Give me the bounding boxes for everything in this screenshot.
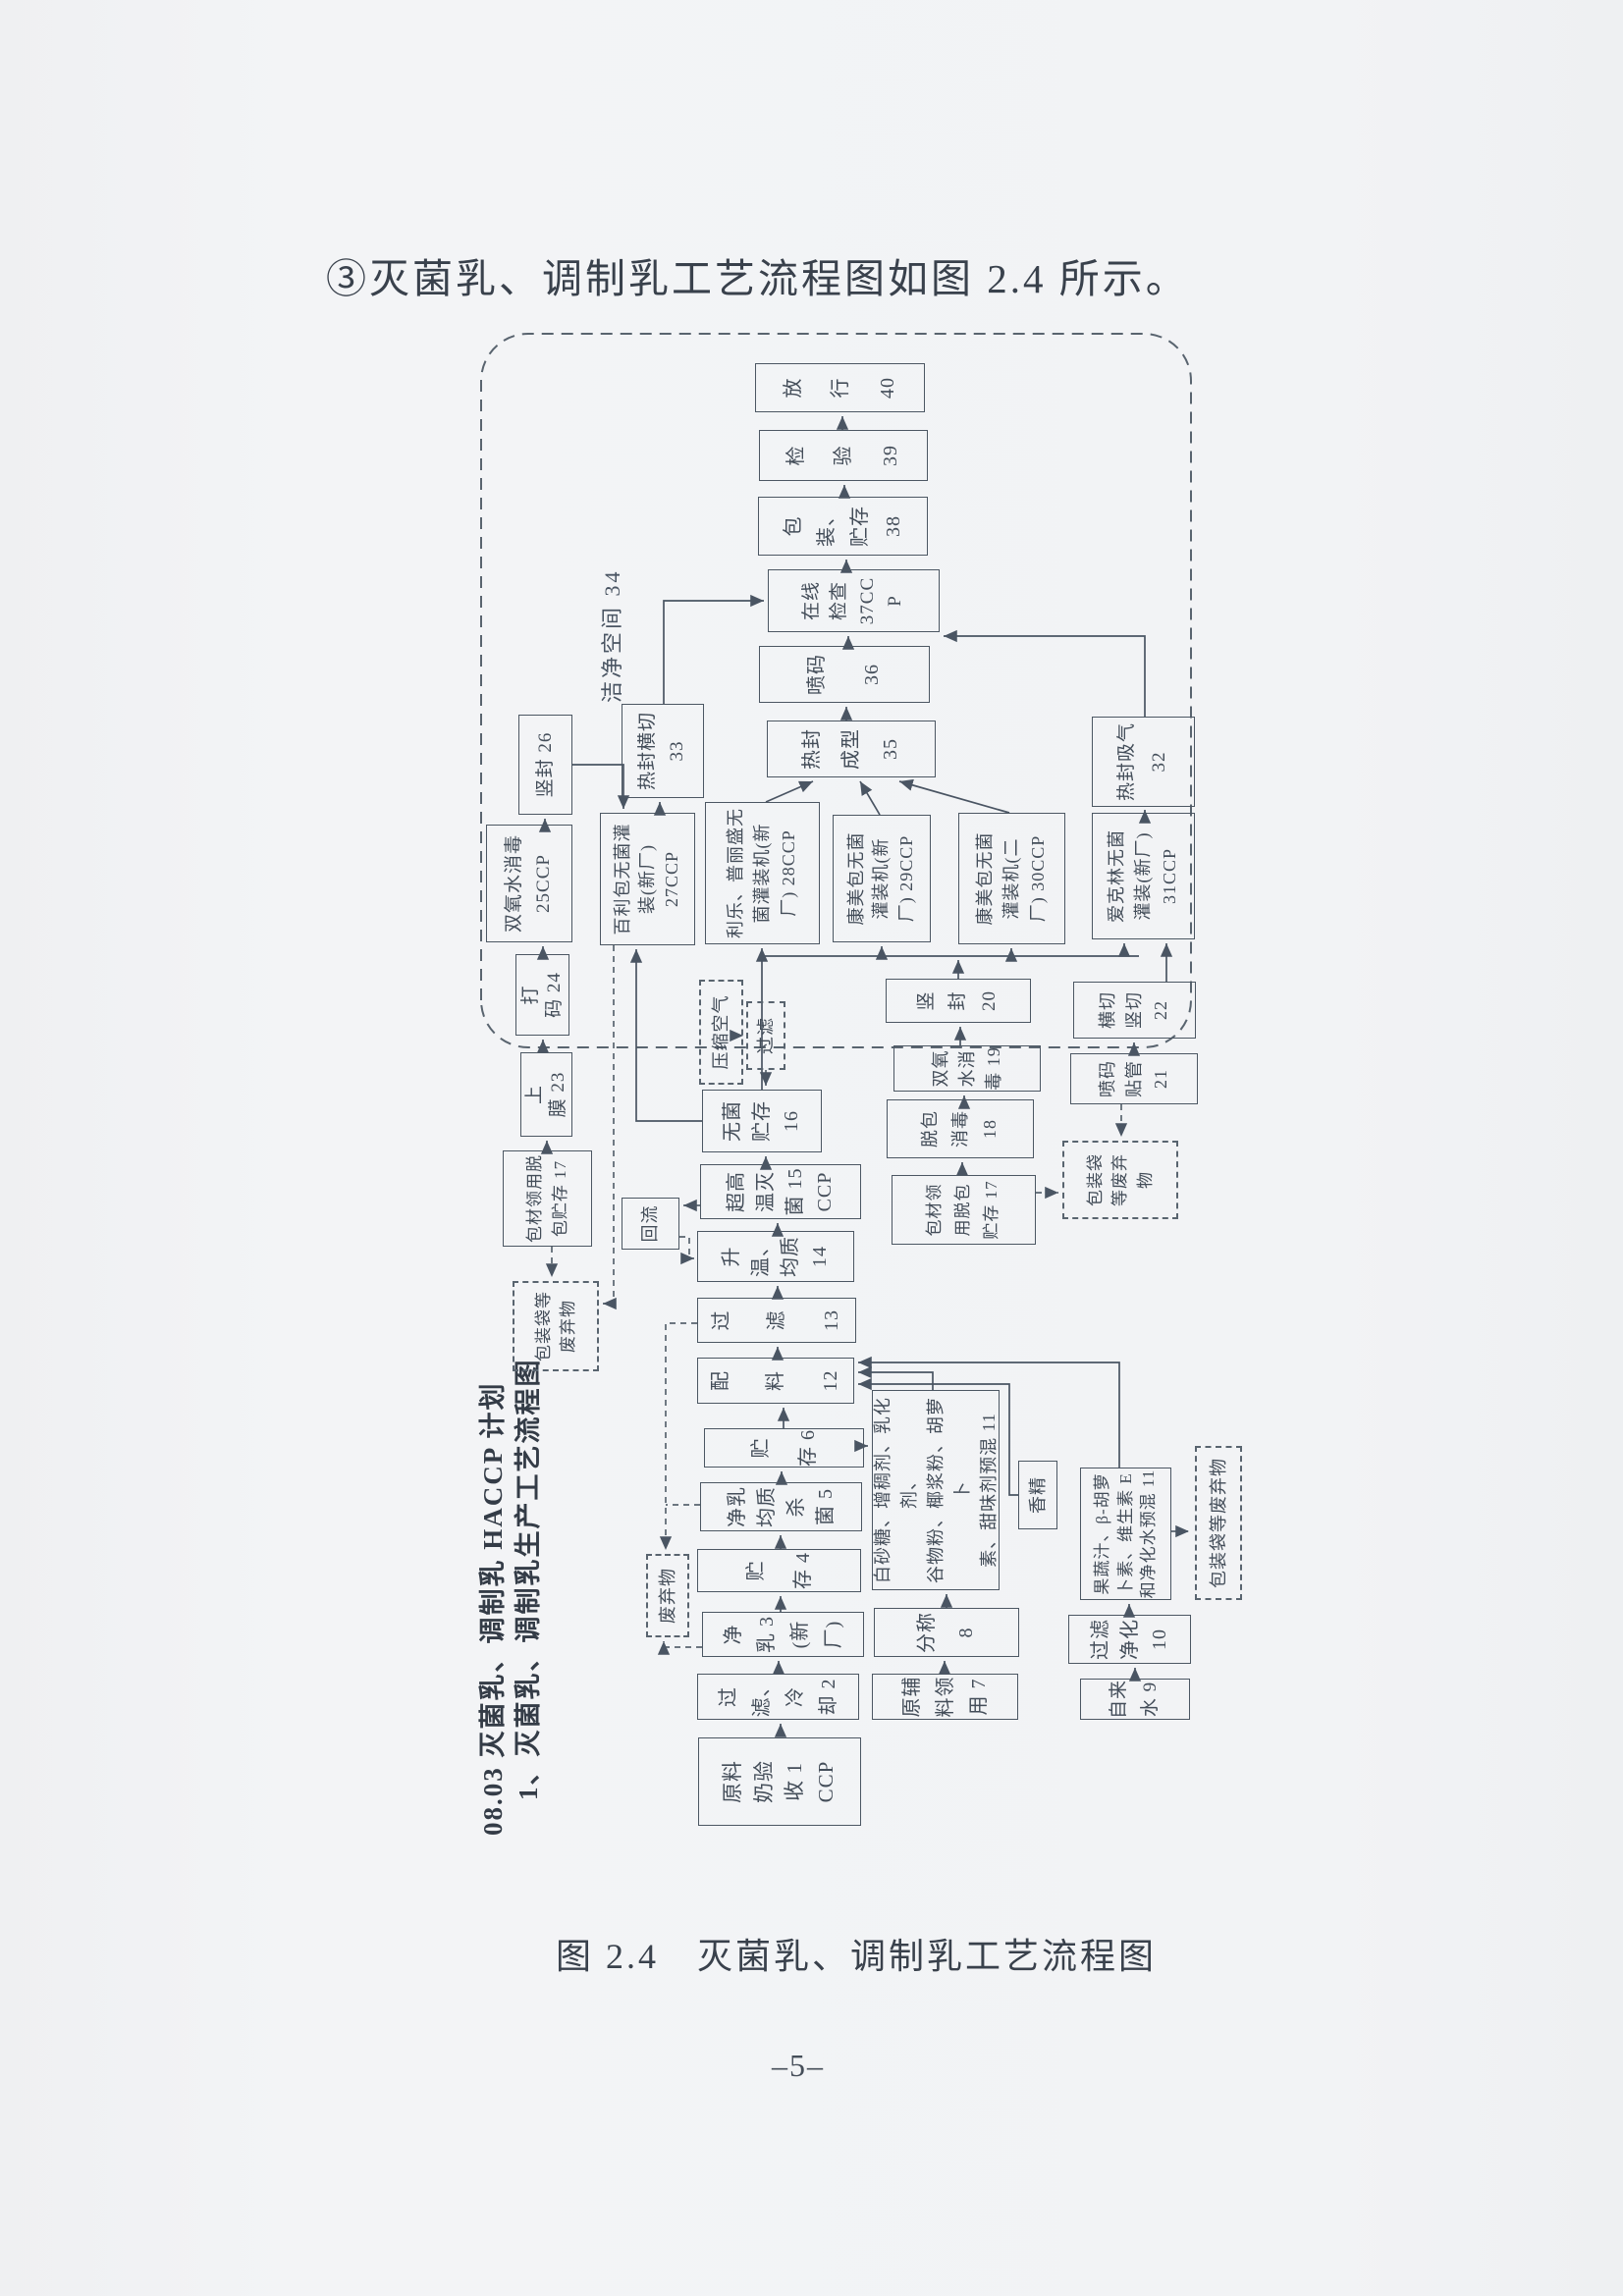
box-filter-cooling-2: 过 滤、 冷 却 2 <box>697 1674 859 1720</box>
box-clarify-homogenize-sterilize-5: 净乳 均质 杀 菌 5 <box>700 1482 862 1531</box>
box-dry-premix-11: 白砂糖、增稠剂、乳化剂、 谷物粉、椰浆粉、胡萝卜 素、甜味剂预混 11 <box>872 1390 1000 1590</box>
box-packaging-waste-left: 包装袋等 废弃物 <box>513 1281 599 1371</box>
box-ingredient-requisition-7: 原辅 料领 用 7 <box>872 1674 1018 1720</box>
box-packaging-waste-bottom: 包装袋等废弃物 <box>1195 1446 1242 1600</box>
box-flavor: 香精 <box>1018 1461 1057 1529</box>
box-clarification-3: 净 乳 3 (新 厂) <box>702 1612 864 1657</box>
box-packaging-material-17-right: 包材领 用脱包 贮存 17 <box>892 1175 1036 1245</box>
box-packaging-material-17-left: 包材领用脱 包贮存 17 <box>503 1150 592 1247</box>
box-filter-purify-10: 过滤 净化 10 <box>1068 1615 1191 1664</box>
box-combibloc-filling-29: 康美包无菌 灌装机(新 厂) 29CCP <box>833 815 931 942</box>
box-storage-6: 贮 存 6 <box>704 1428 864 1468</box>
box-tap-water-9: 自来 水 9 <box>1080 1679 1190 1720</box>
box-reflux: 回流 <box>622 1198 679 1250</box>
box-storage-4: 贮 存 4 <box>697 1549 861 1592</box>
box-depack-disinfect-18: 脱包 消毒 18 <box>887 1099 1034 1158</box>
box-code-straw-21: 喷码 贴管 21 <box>1070 1053 1198 1104</box>
box-heat-homogenize-14: 升 温、 均质 14 <box>697 1231 854 1282</box>
page-number: –5– <box>772 2048 825 2084</box>
box-tetra-filling-28: 利乐、普丽盛无 菌灌装机(新 厂) 28CCP <box>705 802 820 944</box>
chart-title-line2: 1、灭菌乳、调制乳生产工艺流程图 <box>507 1359 545 1801</box>
figure-caption: 图 2.4 灭菌乳、调制乳工艺流程图 <box>556 1928 1157 1979</box>
box-bailibao-filling-27: 百利包无菌灌 装(新厂) 27CCP <box>600 813 695 945</box>
box-air-filter: 过滤 <box>746 1001 785 1070</box>
box-juice-premix-11: 果蔬汁、β-胡萝 卜素、维生素 E 和净化水预混 11 <box>1080 1468 1171 1600</box>
box-raw-milk-acceptance-1: 原料 奶验 收 1 CCP <box>698 1737 861 1826</box>
box-peroxide-disinfect-25: 双氧水消毒 25CCP <box>486 825 572 942</box>
box-packaging-waste-right: 包装袋 等废弃 物 <box>1062 1141 1178 1219</box>
clean-zone-label: 洁净空间 34 <box>595 568 626 703</box>
box-aseptic-storage-16: 无菌 贮存 16 <box>702 1090 822 1152</box>
box-vertical-seal-26: 竖封 26 <box>518 715 572 815</box>
box-heat-seal-cut-33: 热封横切 33 <box>622 704 704 798</box>
box-uht-sterilize-15: 超高 温灭 菌 15 CCP <box>700 1164 861 1219</box>
box-film-loading-23: 上 膜 23 <box>520 1052 572 1137</box>
box-weighing-8: 分称 8 <box>874 1608 1019 1657</box>
box-inspection-39: 检 验 39 <box>759 430 928 481</box>
box-vertical-seal-20: 竖 封 20 <box>886 979 1031 1023</box>
box-filter-13: 过 滤 13 <box>697 1298 856 1343</box>
chart-title-line1: 08.03 灭菌乳、调制乳 HACCP 计划 <box>471 1382 510 1837</box>
box-ecolean-filling-31: 爱克林无菌 灌装(新厂) 31CCP <box>1092 813 1195 939</box>
box-heat-seal-forming-35: 热封 成型 35 <box>767 721 936 777</box>
box-combibloc-filling-30: 康美包无菌 灌装机(二 厂) 30CCP <box>958 813 1065 944</box>
scanned-document-page: ③灭菌乳、调制乳工艺流程图如图 2.4 所示。 <box>0 0 1623 2296</box>
box-online-inspection-37: 在线 检查 37CC P <box>768 569 940 632</box>
box-packing-storage-38: 包装、 贮存 38 <box>758 497 928 556</box>
process-flow-diagram: 08.03 灭菌乳、调制乳 HACCP 计划 1、灭菌乳、调制乳生产工艺流程图 … <box>471 324 1276 1875</box>
box-coding-36: 喷码 36 <box>759 646 930 703</box>
box-batching-12: 配 料 12 <box>697 1358 854 1404</box>
box-peroxide-disinfect-19: 双氧 水消 毒 19 <box>893 1045 1041 1092</box>
box-waste: 废弃物 <box>646 1554 689 1637</box>
box-compressed-air: 压缩空气 <box>699 980 743 1085</box>
page-heading: ③灭菌乳、调制乳工艺流程图如图 2.4 所示。 <box>326 245 1189 304</box>
box-heat-seal-suction-32: 热封吸气 32 <box>1092 717 1195 807</box>
box-release-40: 放 行 40 <box>755 363 925 412</box>
box-coding-24: 打 码 24 <box>515 954 569 1036</box>
box-cross-vertical-cut-22: 横切 竖切 22 <box>1073 982 1196 1039</box>
